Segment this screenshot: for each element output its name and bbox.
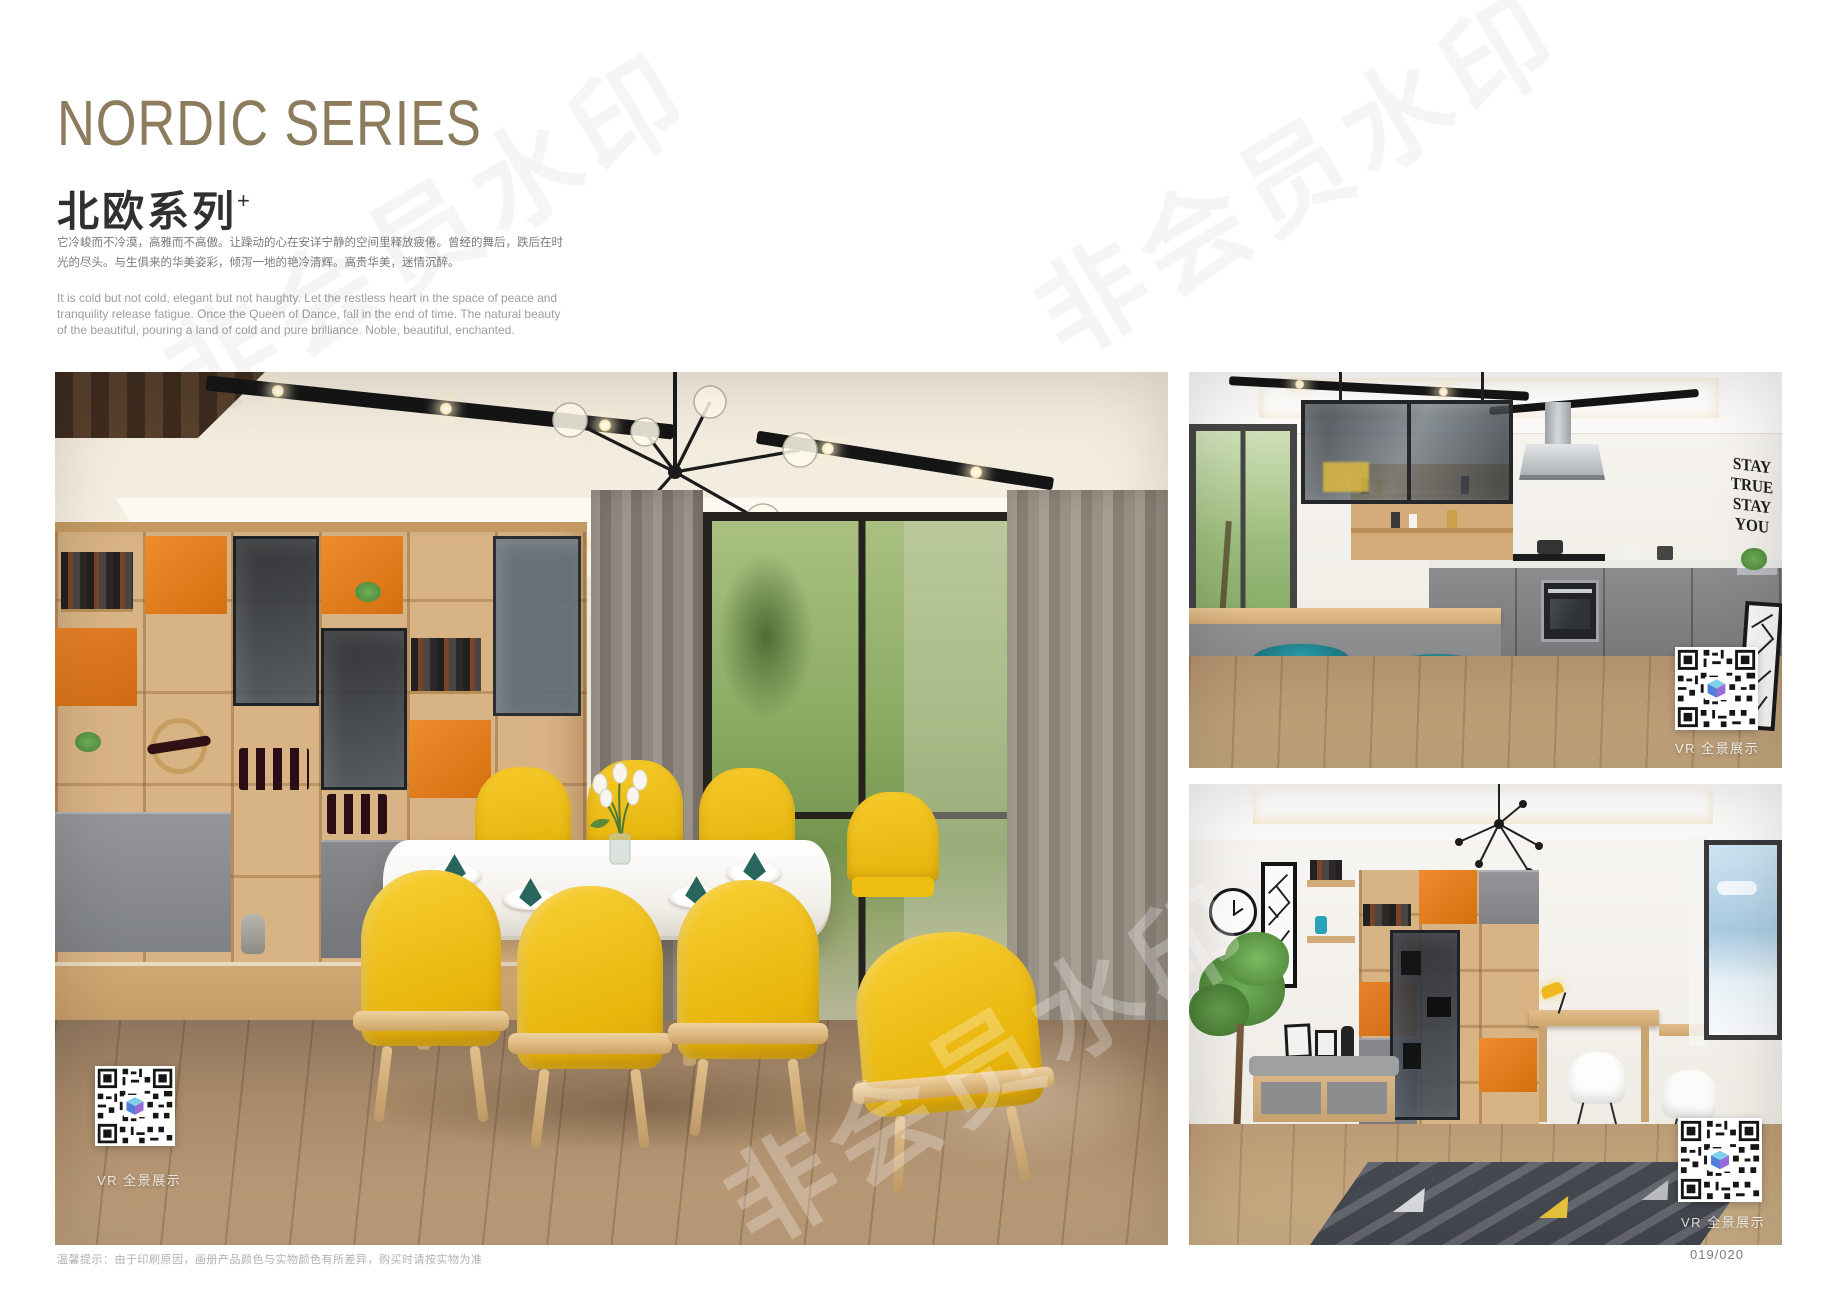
plant-foliage: [1225, 932, 1289, 986]
shelf-cell-orange: [55, 628, 137, 706]
cloud: [1717, 881, 1757, 895]
glass-display-cabinet: [321, 628, 407, 790]
hanging-glass-cabinet: [1301, 400, 1513, 504]
teal-vase: [1315, 916, 1327, 934]
study-window: [1704, 840, 1782, 1040]
rug-triangle: [1641, 1180, 1681, 1200]
desk-leg: [1539, 1026, 1547, 1122]
chair-leg: [787, 1059, 806, 1136]
pot: [1537, 540, 1563, 554]
chair-armrest: [508, 1033, 672, 1054]
vr-qr-code: [95, 1066, 175, 1146]
chair-leg: [373, 1046, 392, 1122]
desk-top: [1529, 1010, 1659, 1026]
dining-room-photo: VR 全景展示: [55, 372, 1168, 1245]
small-appliance: [1619, 544, 1641, 560]
island-counter: [1189, 608, 1501, 624]
study-room-photo: VR 全景展示: [1189, 784, 1782, 1245]
tall-glass-cabinet: [493, 536, 581, 716]
plant: [1741, 548, 1767, 570]
flower-vase: [570, 760, 670, 875]
desk-leg: [1641, 1026, 1649, 1122]
chair-back: [847, 792, 939, 883]
wine-bottles: [327, 794, 387, 834]
gray-cabinet-door: [55, 812, 231, 952]
shelf-plant: [355, 582, 381, 602]
garden-tree: [718, 551, 814, 721]
books-row: [1363, 904, 1411, 926]
shelf-plant: [75, 732, 101, 752]
spotlight: [1439, 387, 1448, 396]
dining-chair-near: [361, 870, 501, 1122]
bench-cushion: [1249, 1056, 1399, 1076]
chair-leg: [470, 1046, 489, 1122]
shelf-cell-orange: [321, 536, 403, 614]
display-item: [1427, 997, 1451, 1017]
rug-triangle-yellow: [1539, 1196, 1582, 1218]
subtitle-text: 北欧系列: [57, 188, 237, 235]
wine-bottles: [239, 748, 309, 790]
shelf-cell-orange: [1479, 1038, 1537, 1092]
jar: [1391, 512, 1400, 528]
vr-label: VR 全景展示: [97, 1170, 181, 1189]
yellow-basket: [1323, 462, 1369, 492]
books-row: [61, 552, 133, 612]
page-subtitle: 北欧系列+: [57, 178, 253, 239]
chair-leg: [893, 1116, 906, 1193]
cup: [1409, 514, 1417, 528]
books-row: [1310, 860, 1342, 880]
vr-label: VR 全景展示: [1675, 738, 1759, 757]
cabinet-divider: [1407, 404, 1411, 500]
chair-leg: [689, 1059, 708, 1136]
black-vase: [1341, 1026, 1354, 1058]
vr-qr-code: [1678, 1118, 1762, 1202]
display-item: [1403, 1043, 1421, 1069]
glass-display-cabinet: [233, 536, 319, 706]
shelf-cell-orange: [145, 536, 227, 614]
page-title: NORDIC SERIES: [57, 86, 482, 160]
subtitle-plus: +: [237, 188, 253, 213]
glass-display-cabinet: [1390, 930, 1460, 1120]
hood-chimney: [1545, 402, 1571, 444]
small-appliance: [1657, 546, 1673, 560]
countertop: [1429, 560, 1782, 568]
chair-armrest: [668, 1023, 827, 1043]
chair-leg: [1006, 1105, 1032, 1182]
books-row: [411, 638, 481, 694]
chair-leg: [530, 1069, 550, 1148]
ceramic-vase: [241, 914, 265, 954]
spotlight: [271, 384, 284, 397]
spotlight: [1295, 380, 1304, 389]
dining-chair-near: [517, 886, 663, 1148]
dining-chair-side: [847, 792, 939, 934]
catalog-page: NORDIC SERIES 北欧系列+ 它冷峻而不冷漠，高雅而不高傲。让躁动的心…: [0, 0, 1836, 1307]
intro-paragraph-en: It is cold but not cold, elegant but not…: [57, 290, 573, 338]
oven-window: [1550, 599, 1590, 629]
oven-handle: [1548, 589, 1592, 593]
spotlight: [969, 465, 983, 479]
display-item: [1401, 951, 1421, 975]
gray-cabinet-door: [1479, 870, 1539, 924]
intro-paragraph-cn: 它冷峻而不冷漠，高雅而不高傲。让躁动的心在安详宁静的空间里释放疲倦。曾经的舞后，…: [57, 233, 569, 273]
footer-disclaimer: 温馨提示：由于印刷原因，画册产品颜色与实物颜色有所差异，购买时请按实物为准: [57, 1251, 483, 1267]
page-number: 019/020: [1690, 1247, 1744, 1262]
photo-frame: [1284, 1023, 1312, 1058]
built-in-oven: [1541, 580, 1599, 642]
kitchen-photo: STAY TRUE STAY YOU VR 全景展示: [1189, 372, 1782, 768]
spotlight: [439, 402, 452, 415]
shelf-board: [1351, 528, 1513, 533]
cooktop: [1513, 554, 1605, 561]
white-chair-back: [1569, 1052, 1625, 1104]
jar: [1447, 510, 1457, 528]
rug-triangle: [1393, 1188, 1440, 1212]
watermark: 非会员水印: [1002, 0, 1588, 387]
vr-label: VR 全景展示: [1681, 1212, 1765, 1231]
chair-leg: [631, 1069, 651, 1148]
bench-drawer: [1327, 1082, 1387, 1114]
dining-chair-near: [677, 880, 819, 1136]
wall-art-stay-true: STAY TRUE STAY YOU: [1730, 453, 1775, 539]
chair-armrest: [353, 1011, 510, 1031]
wall-clock: [1209, 888, 1257, 936]
range-hood: [1519, 444, 1605, 480]
bench-base: [1253, 1076, 1395, 1122]
wall-shelf: [1307, 880, 1355, 887]
photo-frame: [1315, 1030, 1337, 1058]
shelf-cell-orange: [1419, 870, 1477, 924]
dining-chair-side: [850, 925, 1052, 1196]
chair-seat: [852, 877, 935, 897]
bench-drawer: [1261, 1082, 1321, 1114]
vr-qr-code: [1675, 647, 1758, 730]
wall-shelf: [1307, 936, 1355, 943]
shelf-crown: [55, 522, 587, 532]
